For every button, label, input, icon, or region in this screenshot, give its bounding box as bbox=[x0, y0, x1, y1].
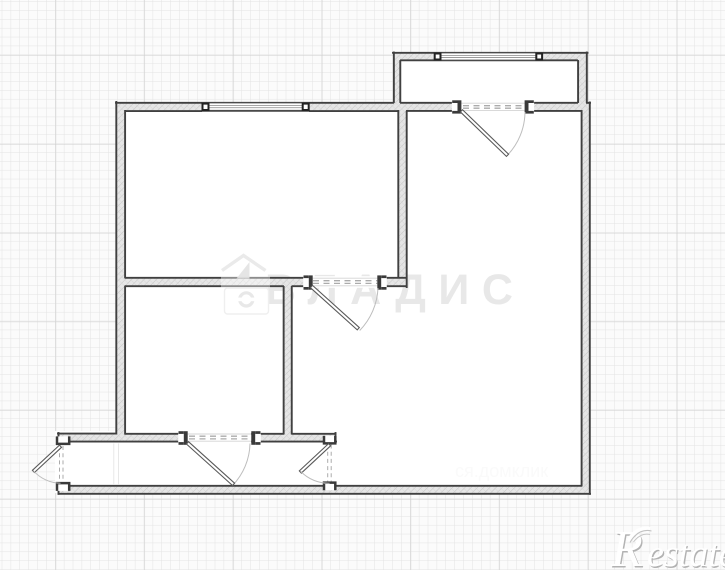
svg-text:estate: estate bbox=[647, 533, 725, 570]
svg-text:ся.домклик: ся.домклик bbox=[455, 461, 548, 481]
svg-text:R: R bbox=[610, 521, 643, 570]
svg-text:ВЛАДИС: ВЛАДИС bbox=[265, 266, 525, 314]
